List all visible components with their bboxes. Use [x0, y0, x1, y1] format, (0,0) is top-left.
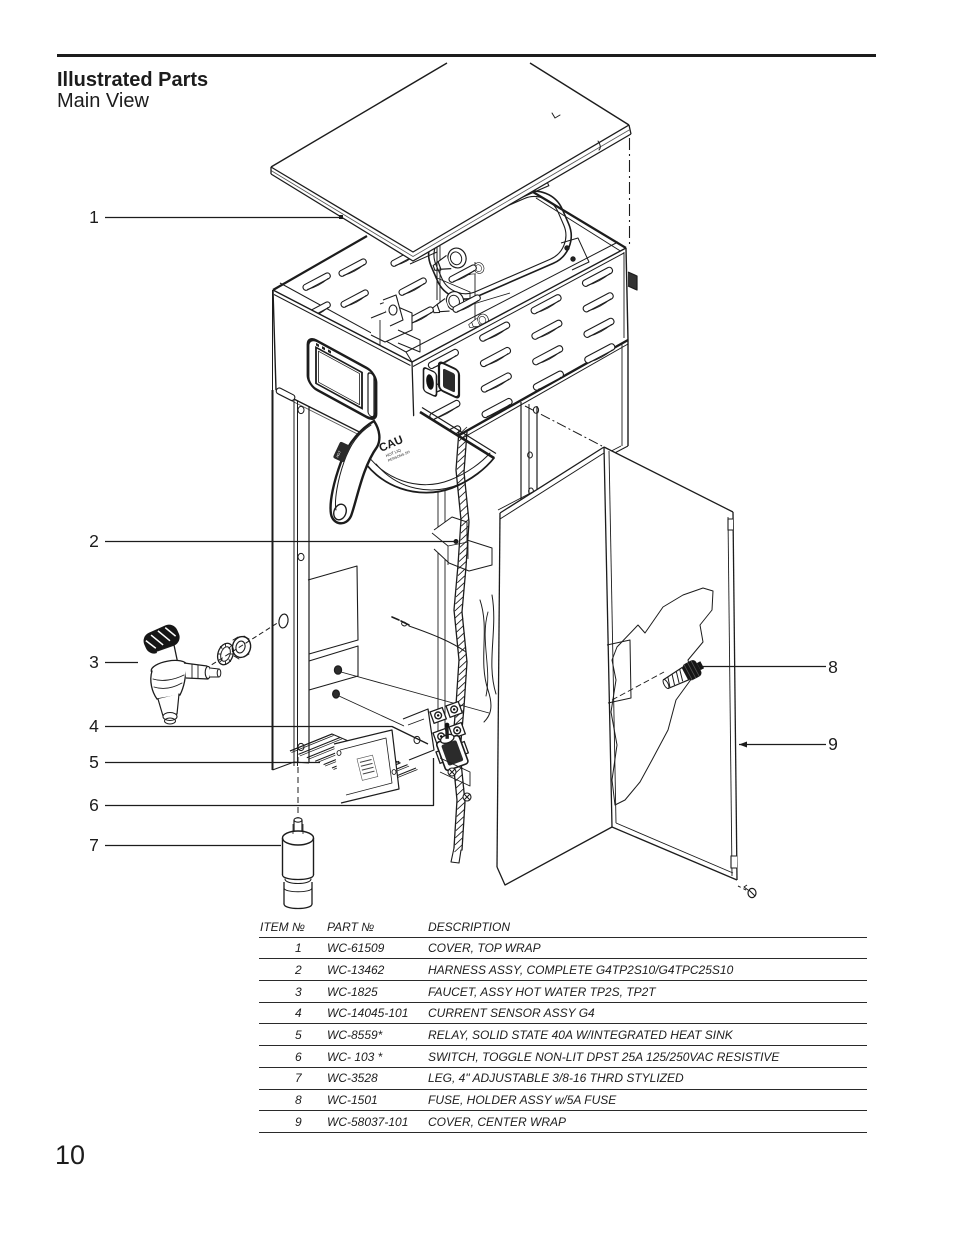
svg-text:6: 6 [89, 795, 99, 815]
svg-text:2: 2 [89, 531, 99, 551]
svg-text:9: 9 [828, 734, 838, 754]
svg-text:1: 1 [89, 207, 99, 227]
svg-text:7: 7 [89, 835, 99, 855]
svg-text:5: 5 [89, 752, 99, 772]
svg-text:3: 3 [89, 652, 99, 672]
svg-text:4: 4 [89, 716, 99, 736]
svg-text:8: 8 [828, 657, 838, 677]
